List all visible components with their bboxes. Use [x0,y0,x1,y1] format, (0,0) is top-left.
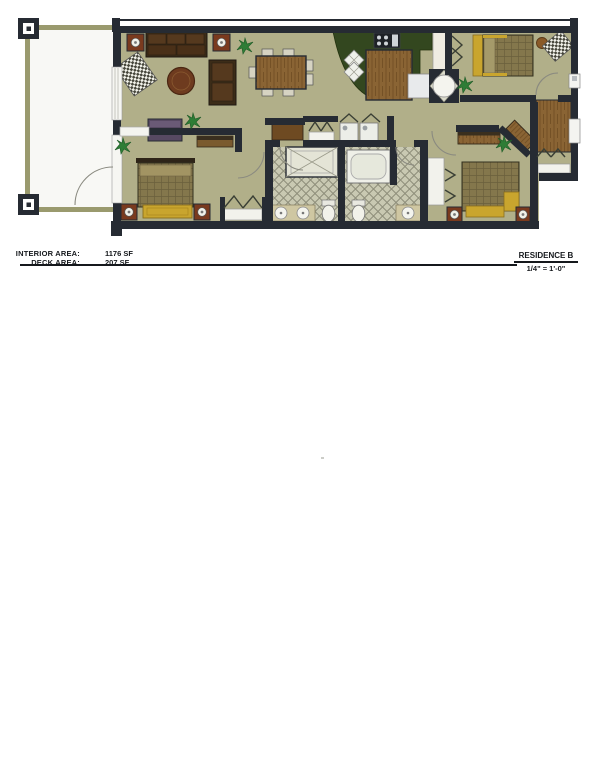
end-table-right [213,34,230,51]
master-closet-shelf [224,209,262,220]
deck-rail-left [25,25,30,212]
dining-area [249,49,313,96]
walkin-closet-shelf [538,164,570,173]
kitchen-island [366,50,412,100]
master-bed [136,158,195,218]
media-console [197,136,233,147]
bed2-nightstand-right [516,207,530,222]
bath2-toilet [352,200,365,222]
nightstand-left [121,204,137,220]
end-table-left [127,34,144,51]
sofa [146,32,207,57]
bed2-closet-shelf [428,158,444,205]
cased-opening [120,127,149,136]
deck-post-bottom [18,194,39,215]
cooktop [374,33,400,48]
entry-niche [429,69,459,103]
round-entry-table [433,75,455,97]
deck [18,18,115,215]
master-vanity [269,205,315,221]
nightstand-right [194,204,210,220]
floor-plan-drawing [0,0,600,300]
window-right-2 [569,119,580,143]
dining-table [256,56,306,89]
pantry-cabinet [433,32,446,72]
coffee-table [168,68,195,95]
armchair [209,60,236,105]
master-shower [286,147,338,177]
bath2-vanity [396,205,421,221]
master-toilet [322,200,335,222]
bed-2 [462,162,519,217]
floor-plan-sheet: INTERIOR AREA: 1176 SF DECK AREA: 207 SF… [0,0,600,777]
deck-post-top [18,18,39,39]
bathtub [347,150,390,183]
bed-1 [473,35,533,76]
desk [458,132,500,144]
deck-floor [25,25,115,212]
living-slider-door [112,67,122,120]
bed2-nightstand-left [447,207,462,222]
scan-artifact [321,457,324,459]
refrigerator [408,74,432,98]
walkin-closet-wood-floor [536,100,571,152]
